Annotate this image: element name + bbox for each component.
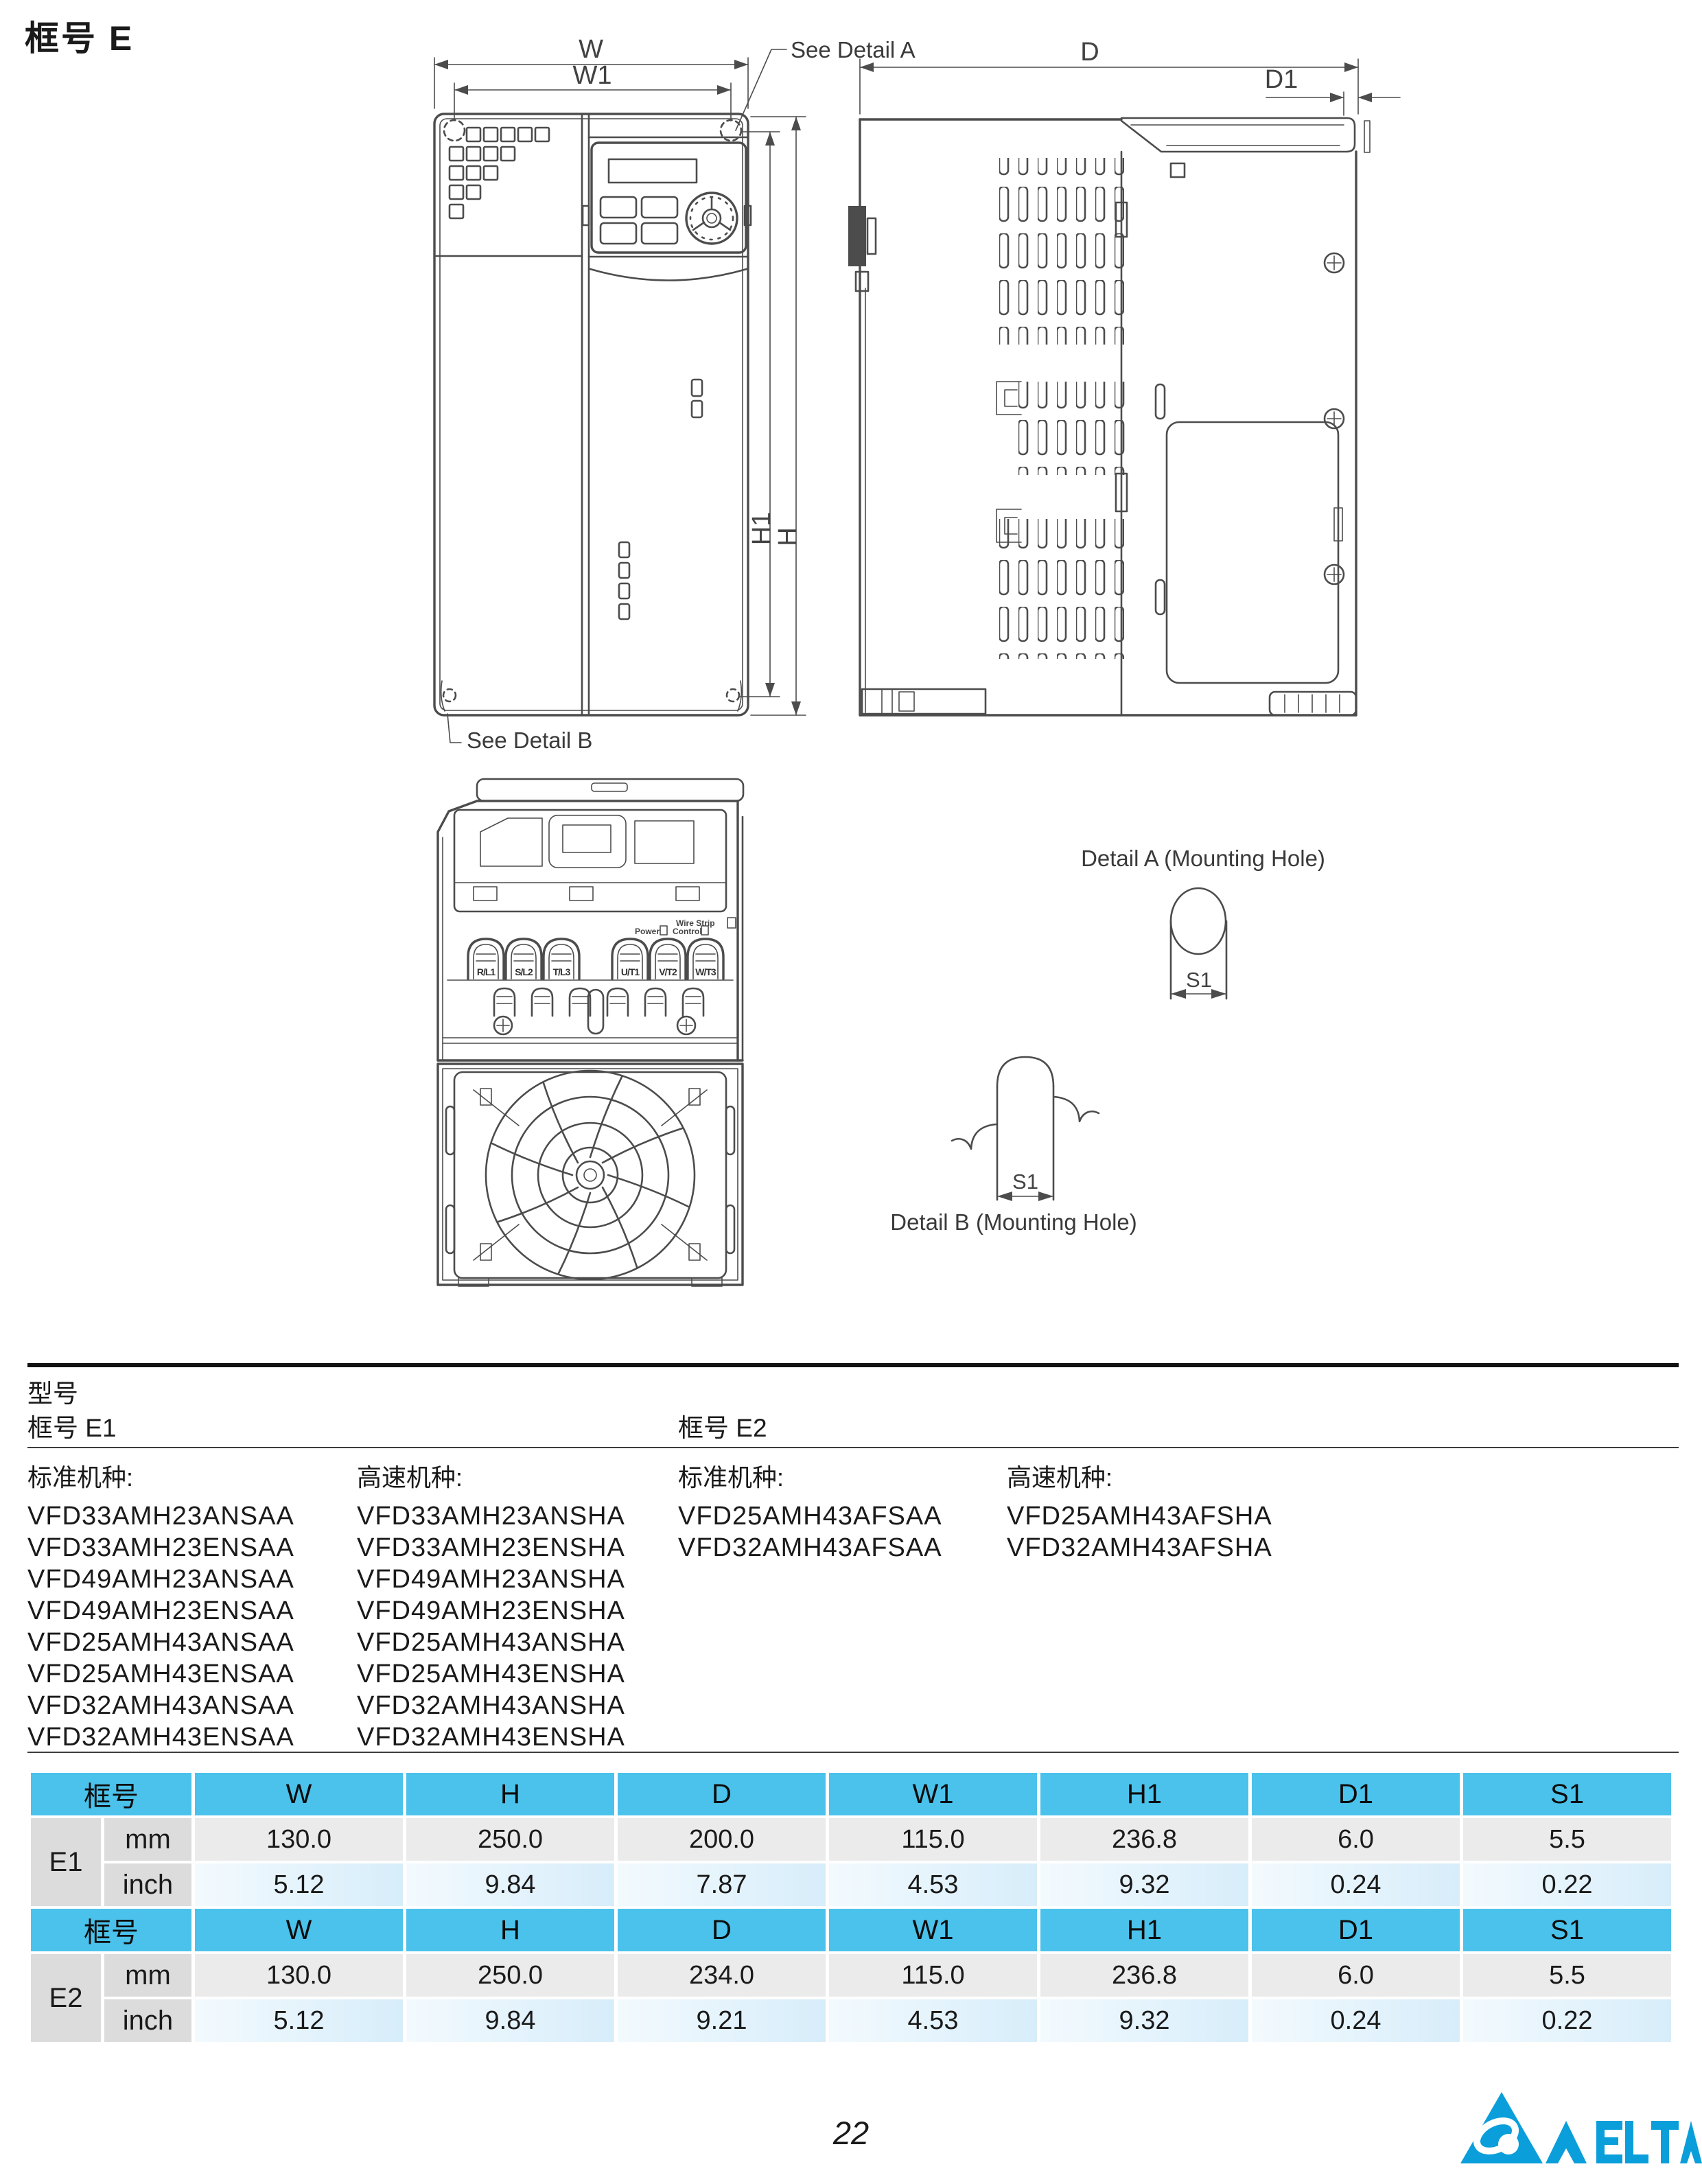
terminal-label: T/L3: [553, 966, 571, 977]
front-vent-squares: [450, 128, 549, 218]
screw-icon: [1325, 565, 1344, 584]
screw-icon: [677, 1017, 695, 1034]
model-number: VFD32AMH43AFSAA: [678, 1532, 942, 1564]
model-number: VFD25AMH43ANSHA: [357, 1627, 625, 1658]
dim-label-w1: W1: [573, 61, 612, 90]
model-number: VFD32AMH43ENSHA: [357, 1721, 625, 1753]
model-number: VFD32AMH43ANSHA: [357, 1690, 625, 1721]
model-list-e1-highspeed: 高速机种: VFD33AMH23ANSHA VFD33AMH23ENSHA VF…: [357, 1458, 625, 1753]
value-cell: 9.32: [1040, 1999, 1248, 2042]
model-number: VFD32AMH43AFSHA: [1007, 1532, 1272, 1564]
model-list-e2-highspeed: 高速机种: VFD25AMH43AFSHA VFD32AMH43AFSHA: [1007, 1458, 1272, 1564]
model-col-header: 高速机种:: [357, 1458, 625, 1494]
terminal-label: S/L2: [515, 966, 533, 977]
value-cell: 5.5: [1463, 1954, 1671, 1997]
side-vents-upper: [994, 158, 1124, 345]
value-cell: 0.22: [1463, 1999, 1671, 2042]
model-number: VFD32AMH43ENSAA: [27, 1721, 294, 1753]
frame-label-cell: E1: [31, 1818, 101, 1906]
table-header-cell: 框号: [31, 1909, 191, 1951]
table-header-cell: D: [618, 1773, 826, 1815]
dim-label-d: D: [1080, 38, 1099, 67]
table-header-cell: W: [195, 1909, 403, 1951]
unit-cell: inch: [104, 1999, 191, 2042]
model-number: VFD49AMH23ANSAA: [27, 1564, 294, 1595]
dim-label-h1: H1: [747, 512, 776, 546]
control-label: Control: [673, 927, 702, 936]
section-divider: [27, 1363, 1679, 1367]
value-cell: 4.53: [829, 1863, 1037, 1906]
dimension-drawings: W W1 See Detail A H1 H See Det: [0, 0, 1702, 1359]
side-access-panel: [1167, 422, 1338, 683]
value-cell: 130.0: [195, 1818, 403, 1861]
dim-label-s1: S1: [1012, 1170, 1038, 1194]
table-header-cell: H: [406, 1909, 614, 1951]
secondary-terminals: [494, 988, 703, 1016]
unit-cell: inch: [104, 1863, 191, 1906]
model-number: VFD33AMH23ENSAA: [27, 1532, 294, 1564]
value-cell: 9.84: [406, 1999, 614, 2042]
value-cell: 234.0: [618, 1954, 826, 1997]
model-number: VFD49AMH23ENSHA: [357, 1595, 625, 1627]
dim-label-s1: S1: [1186, 968, 1212, 992]
unit-cell: mm: [104, 1954, 191, 1997]
keypad: [583, 137, 751, 281]
side-vents-lower: [994, 519, 1124, 659]
table-header-cell: D1: [1252, 1773, 1460, 1815]
mounting-hole-bottom-right: [727, 689, 739, 701]
table-header-cell: H1: [1040, 1773, 1248, 1815]
model-number: VFD25AMH43ENSHA: [357, 1658, 625, 1690]
value-cell: 6.0: [1252, 1818, 1460, 1861]
value-cell: 130.0: [195, 1954, 403, 1997]
power-label: Power: [635, 927, 660, 936]
mounting-hole-bottom-left: [443, 689, 456, 701]
keypad-button: [642, 223, 677, 244]
table-header-cell: H: [406, 1773, 614, 1815]
terminal-label: V/T2: [659, 966, 677, 977]
model-number: VFD49AMH23ENSAA: [27, 1595, 294, 1627]
value-cell: 115.0: [829, 1818, 1037, 1861]
value-cell: 236.8: [1040, 1954, 1248, 1997]
keypad-display: [609, 159, 697, 183]
model-number: VFD25AMH43ENSAA: [27, 1658, 294, 1690]
model-col-header: 标准机种:: [678, 1458, 942, 1494]
value-cell: 4.53: [829, 1999, 1037, 2042]
detail-a: Detail A (Mounting Hole) S1: [1081, 846, 1325, 999]
dimension-table: 框号 W H D W1 H1 D1 S1 E1 mm 130.0 250.0 2…: [31, 1773, 1671, 2042]
table-header-cell: S1: [1463, 1773, 1671, 1815]
table-header-cell: H1: [1040, 1909, 1248, 1951]
value-cell: 9.21: [618, 1999, 826, 2042]
table-header-cell: S1: [1463, 1909, 1671, 1951]
mounting-hole-top-left: [444, 120, 465, 141]
model-number: VFD32AMH43ANSAA: [27, 1690, 294, 1721]
value-cell: 0.22: [1463, 1863, 1671, 1906]
table-header-cell: W1: [829, 1909, 1037, 1951]
value-cell: 5.12: [195, 1999, 403, 2042]
model-number: VFD25AMH43AFSHA: [1007, 1500, 1272, 1532]
section-divider: [27, 1752, 1679, 1753]
model-number: VFD25AMH43ANSAA: [27, 1627, 294, 1658]
table-header-cell: W1: [829, 1773, 1037, 1815]
detail-a-title: Detail A (Mounting Hole): [1081, 846, 1325, 871]
model-number: VFD49AMH23ANSHA: [357, 1564, 625, 1595]
model-list-e1-standard: 标准机种: VFD33AMH23ANSAA VFD33AMH23ENSAA VF…: [27, 1458, 294, 1753]
model-number: VFD33AMH23ANSHA: [357, 1500, 625, 1532]
terminal-label: R/L1: [477, 966, 496, 977]
value-cell: 9.84: [406, 1863, 614, 1906]
frame-e2-title: 框号 E2: [678, 1407, 767, 1444]
delta-wordmark: [1546, 2121, 1702, 2163]
manual-page: 框号 E: [0, 0, 1702, 2184]
terminal-label: W/T3: [695, 966, 716, 977]
model-number: VFD33AMH23ANSAA: [27, 1500, 294, 1532]
value-cell: 250.0: [406, 1818, 614, 1861]
model-col-header: 标准机种:: [27, 1458, 294, 1494]
screw-icon: [1325, 409, 1344, 428]
terminal-label: U/T1: [621, 966, 640, 977]
value-cell: 6.0: [1252, 1954, 1460, 1997]
delta-logo: [1454, 2085, 1702, 2169]
table-header-cell: 框号: [31, 1773, 191, 1815]
value-cell: 0.24: [1252, 1999, 1460, 2042]
value-cell: 200.0: [618, 1818, 826, 1861]
value-cell: 7.87: [618, 1863, 826, 1906]
value-cell: 0.24: [1252, 1863, 1460, 1906]
value-cell: 5.5: [1463, 1818, 1671, 1861]
model-number: VFD25AMH43AFSAA: [678, 1500, 942, 1532]
side-view: [848, 118, 1370, 715]
frame-e1-title: 框号 E1: [27, 1407, 117, 1444]
section-divider: [27, 1447, 1679, 1448]
table-header-cell: D1: [1252, 1909, 1460, 1951]
front-view: [434, 114, 751, 715]
dim-label-w: W: [579, 35, 603, 64]
model-section-title: 型号: [27, 1373, 78, 1410]
see-detail-b-label: See Detail B: [467, 728, 592, 753]
bottom-view: Wire Strip Power Control: [438, 779, 743, 1286]
model-col-header: 高速机种:: [1007, 1458, 1272, 1494]
keypad-button: [601, 197, 636, 218]
frame-label-cell: E2: [31, 1954, 101, 2042]
screw-icon: [1325, 253, 1344, 272]
dim-label-d1: D1: [1265, 65, 1298, 94]
unit-cell: mm: [104, 1818, 191, 1861]
model-list-e2-standard: 标准机种: VFD25AMH43AFSAA VFD32AMH43AFSAA: [678, 1458, 942, 1564]
value-cell: 115.0: [829, 1954, 1037, 1997]
table-header-cell: W: [195, 1773, 403, 1815]
table-header-cell: D: [618, 1909, 826, 1951]
keypad-button: [642, 197, 677, 218]
dim-label-h: H: [773, 527, 802, 546]
page-number: 22: [0, 2114, 1702, 2152]
side-view-dimensions: D D1: [860, 38, 1400, 115]
value-cell: 236.8: [1040, 1818, 1248, 1861]
value-cell: 9.32: [1040, 1863, 1248, 1906]
detail-b: S1 Detail B (Mounting Hole): [890, 1057, 1137, 1235]
value-cell: 250.0: [406, 1954, 614, 1997]
side-connector: [848, 206, 866, 266]
fan-section: [438, 1064, 743, 1286]
side-vents-middle: [1013, 382, 1127, 475]
model-number: VFD33AMH23ENSHA: [357, 1532, 625, 1564]
see-detail-a-label: See Detail A: [791, 37, 916, 62]
power-terminals: R/L1 S/L2 T/L3 U/T1 V/T2 W/T3: [468, 939, 723, 979]
screw-icon: [494, 1017, 512, 1034]
keypad-button: [601, 223, 636, 244]
value-cell: 5.12: [195, 1863, 403, 1906]
detail-b-title: Detail B (Mounting Hole): [890, 1209, 1137, 1235]
